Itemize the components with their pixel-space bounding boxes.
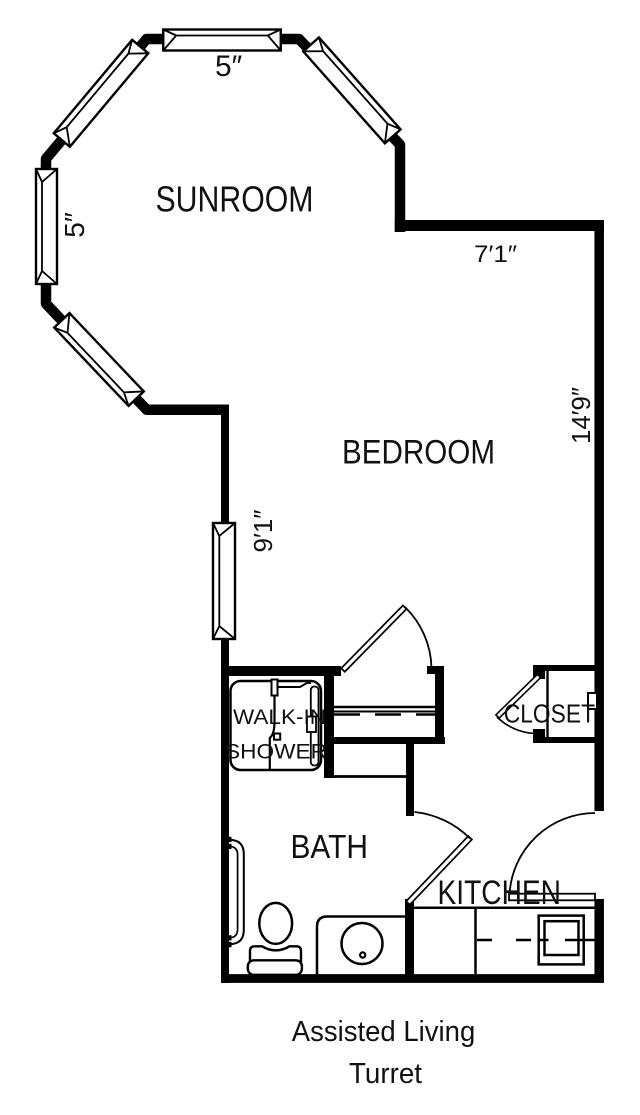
svg-text:Assisted Living: Assisted Living bbox=[292, 1016, 476, 1048]
svg-text:5″: 5″ bbox=[215, 50, 243, 83]
svg-text:7′1″: 7′1″ bbox=[474, 241, 518, 268]
svg-text:SHOWER: SHOWER bbox=[225, 740, 327, 764]
svg-text:Turret: Turret bbox=[349, 1058, 422, 1090]
svg-text:SUNROOM: SUNROOM bbox=[156, 179, 314, 220]
svg-text:KITCHEN: KITCHEN bbox=[438, 874, 562, 912]
svg-text:9′1″: 9′1″ bbox=[248, 510, 278, 553]
svg-text:14′9″: 14′9″ bbox=[566, 387, 596, 444]
svg-text:CLOSET: CLOSET bbox=[504, 699, 595, 729]
svg-text:5″: 5″ bbox=[59, 212, 90, 238]
svg-text:BATH: BATH bbox=[291, 828, 369, 865]
svg-text:WALK-IN: WALK-IN bbox=[233, 705, 326, 729]
svg-text:BEDROOM: BEDROOM bbox=[342, 434, 495, 472]
